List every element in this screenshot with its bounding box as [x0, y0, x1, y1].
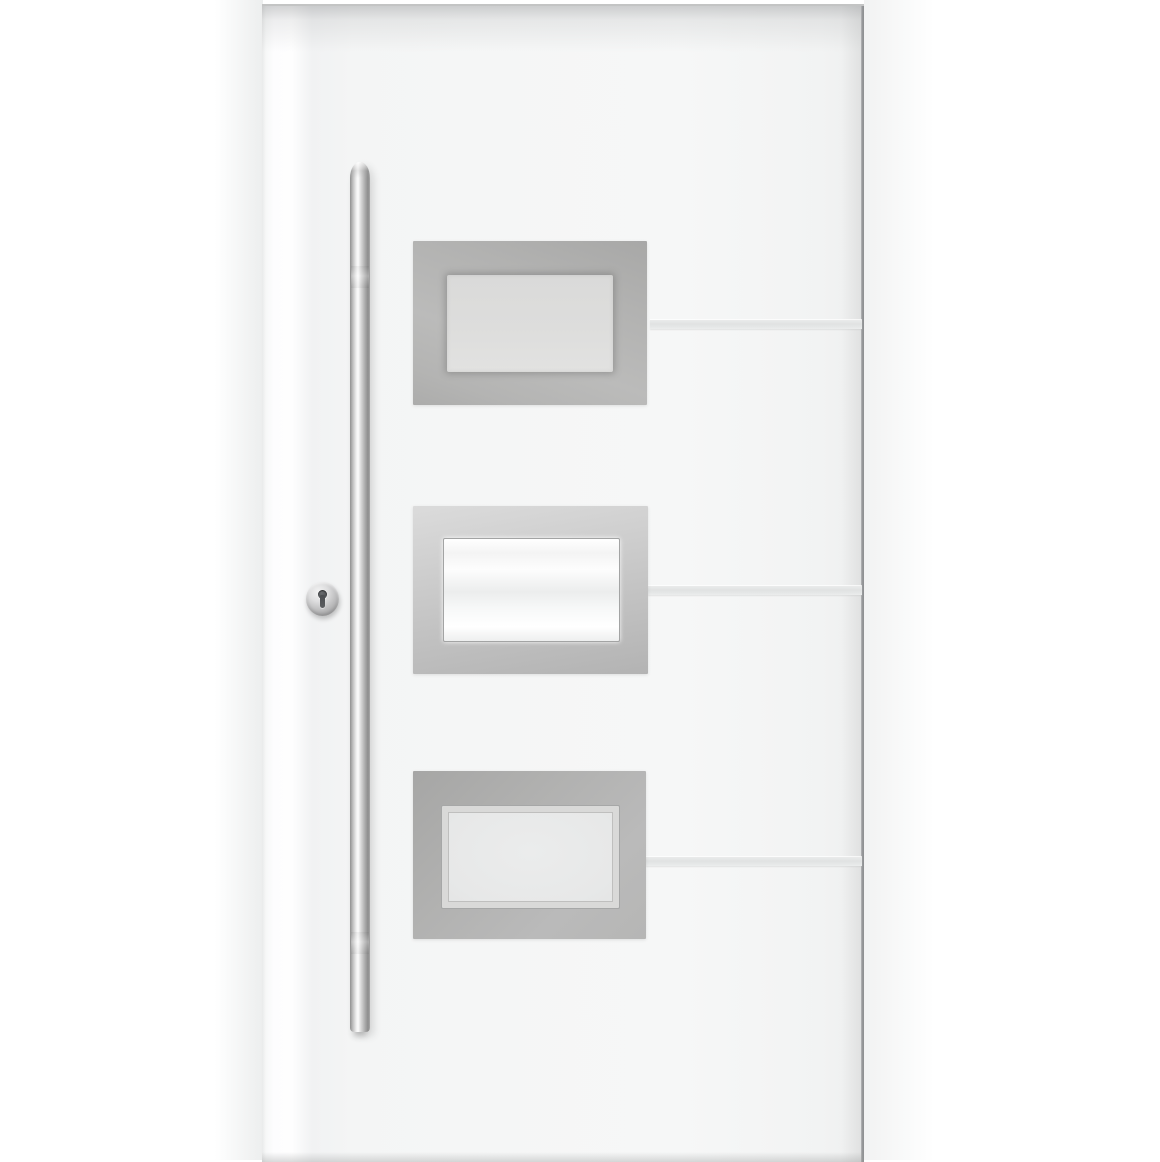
door-leaf	[262, 4, 864, 1162]
door-top-shadow	[262, 6, 864, 52]
glass-panel-middle	[413, 506, 648, 674]
lock-cylinder	[306, 582, 339, 616]
door-bottom-shadow	[262, 1152, 864, 1162]
glass-pane-top	[447, 275, 613, 372]
handle-mount-lower	[351, 932, 369, 954]
pull-handle-top-cap	[350, 162, 370, 178]
handle-mount-upper	[351, 266, 369, 288]
keyhole-slot-icon	[320, 595, 325, 608]
door-right-edge	[861, 6, 864, 1162]
glass-pane-bottom	[441, 805, 620, 909]
pull-handle	[350, 162, 370, 1032]
right-background-shade	[864, 0, 934, 1160]
inlay-strip-bottom	[646, 857, 862, 866]
glass-panel-top	[413, 241, 647, 405]
glass-pane-middle	[443, 538, 620, 642]
glass-panel-bottom	[413, 771, 646, 939]
inlay-strip-top	[650, 320, 862, 329]
door-right-inner-shade	[841, 6, 861, 1162]
inlay-strip-middle	[648, 586, 862, 595]
left-background-shade	[215, 0, 263, 1160]
photo-canvas	[0, 0, 1160, 1160]
